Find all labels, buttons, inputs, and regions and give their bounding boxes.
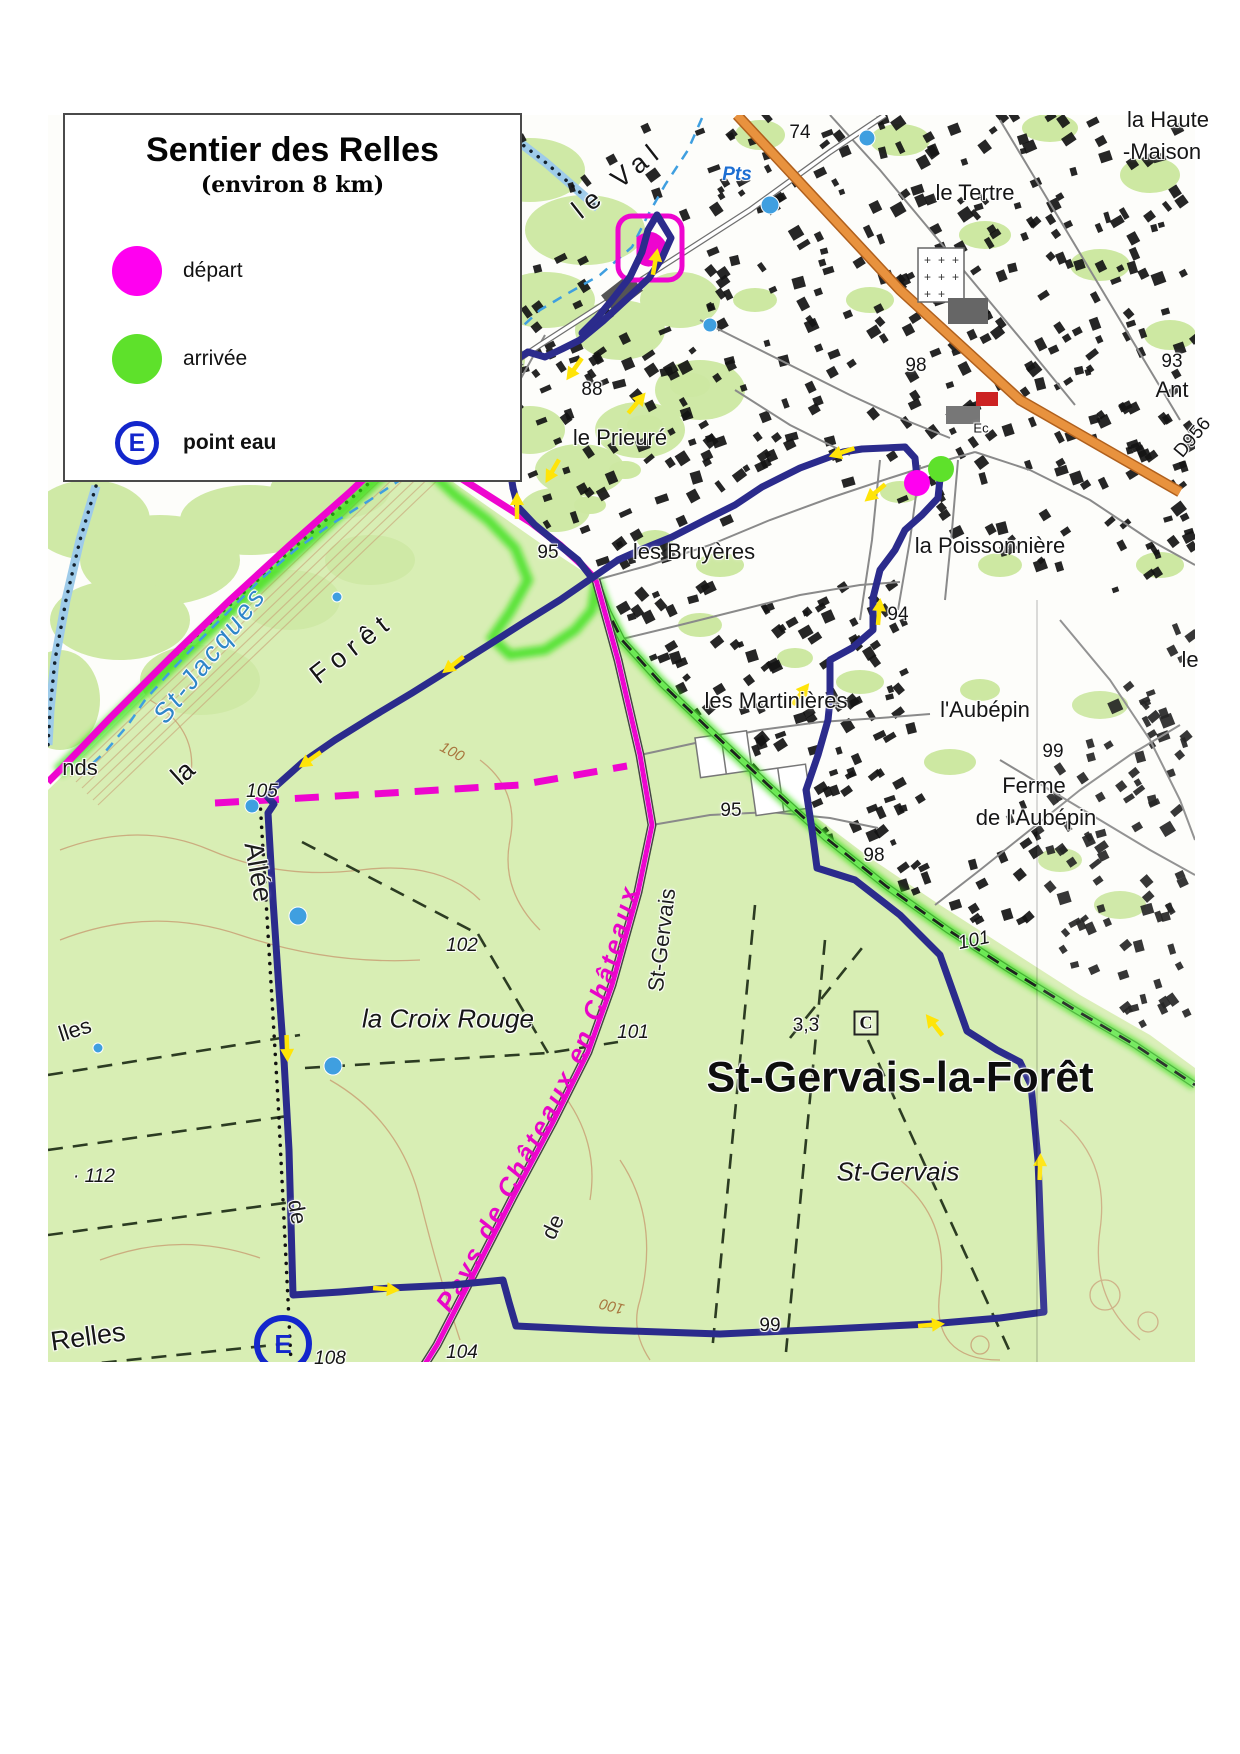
cemetery: +++ +++ ++ xyxy=(918,248,964,302)
svg-text:+: + xyxy=(938,253,945,267)
svg-text:+: + xyxy=(924,270,931,284)
svg-text:+: + xyxy=(952,270,959,284)
arrivee-dot xyxy=(928,456,954,482)
legend-box: Sentier des Relles (environ 8 km) départ… xyxy=(63,113,522,482)
depart-marker-icon xyxy=(112,246,162,296)
legend-item-label: point eau xyxy=(183,431,276,455)
svg-text:+: + xyxy=(938,270,945,284)
svg-text:+: + xyxy=(924,287,931,301)
svg-text:+: + xyxy=(952,253,959,267)
svg-text:+: + xyxy=(938,287,945,301)
red-building xyxy=(976,392,998,406)
legend-item-depart: départ xyxy=(65,245,520,297)
legend-item-label: arrivée xyxy=(183,347,247,371)
legend-item-label: départ xyxy=(183,259,243,283)
water-point-icon: E xyxy=(115,421,159,465)
depart-dot xyxy=(904,470,930,496)
legend-subtitle: (environ 8 km) xyxy=(65,172,520,198)
arrivee-marker-icon xyxy=(112,334,162,384)
map-tile-seam xyxy=(1037,600,1195,1362)
svg-text:+: + xyxy=(924,253,931,267)
legend-item-arrivee: arrivée xyxy=(65,333,520,385)
legend-title: Sentier des Relles xyxy=(65,131,520,170)
legend-item-point-eau: E point eau xyxy=(65,417,520,469)
page: +++ +++ ++ xyxy=(0,0,1240,1754)
svg-text:E: E xyxy=(274,1329,291,1359)
